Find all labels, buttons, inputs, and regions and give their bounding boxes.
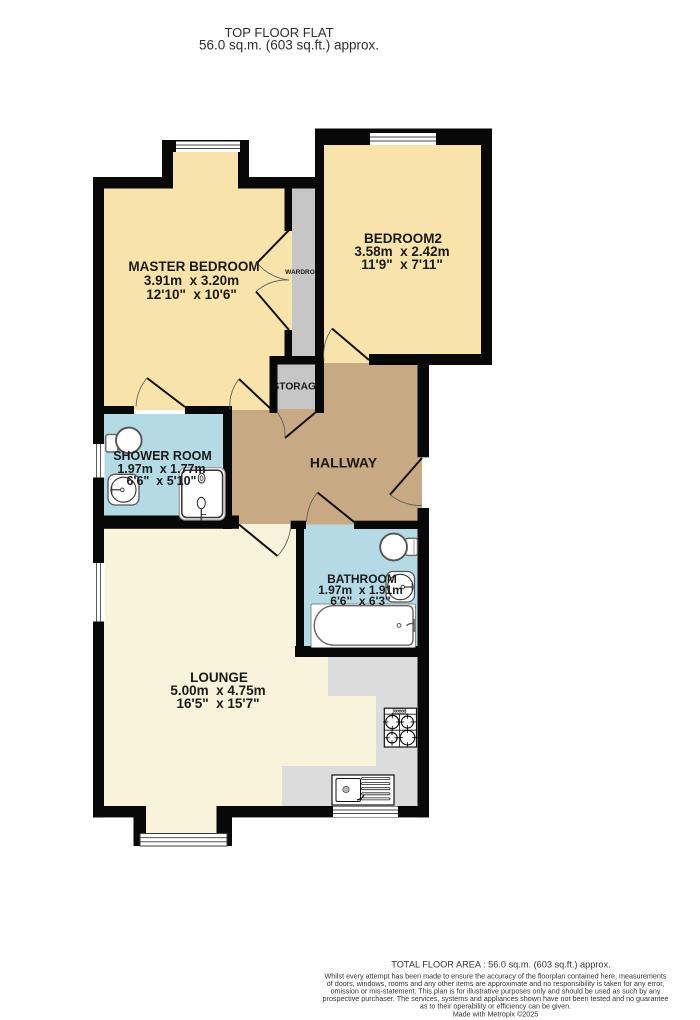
- svg-text:HALLWAY: HALLWAY: [310, 455, 378, 471]
- svg-text:16'5" x 15'7": 16'5" x 15'7": [176, 696, 259, 711]
- svg-text:Made with Metropix ©2025: Made with Metropix ©2025: [453, 1009, 539, 1018]
- svg-text:6'6" x 5'10": 6'6" x 5'10": [127, 474, 197, 488]
- svg-text:MASTER BEDROOM: MASTER BEDROOM: [128, 259, 259, 274]
- svg-text:56.0 sq.m. (603 sq.ft.) approx: 56.0 sq.m. (603 sq.ft.) approx.: [199, 38, 379, 53]
- svg-text:3.91m x 3.20m: 3.91m x 3.20m: [144, 273, 239, 288]
- svg-text:6'6" x 6'3": 6'6" x 6'3": [330, 594, 390, 608]
- svg-text:12'10" x 10'6": 12'10" x 10'6": [146, 287, 237, 302]
- svg-text:SHOWER ROOM: SHOWER ROOM: [113, 449, 212, 463]
- svg-text:11'9" x 7'11": 11'9" x 7'11": [361, 257, 443, 272]
- svg-text:TOTAL FLOOR AREA : 56.0 sq.m.: TOTAL FLOOR AREA : 56.0 sq.m. (603 sq.ft…: [391, 960, 610, 970]
